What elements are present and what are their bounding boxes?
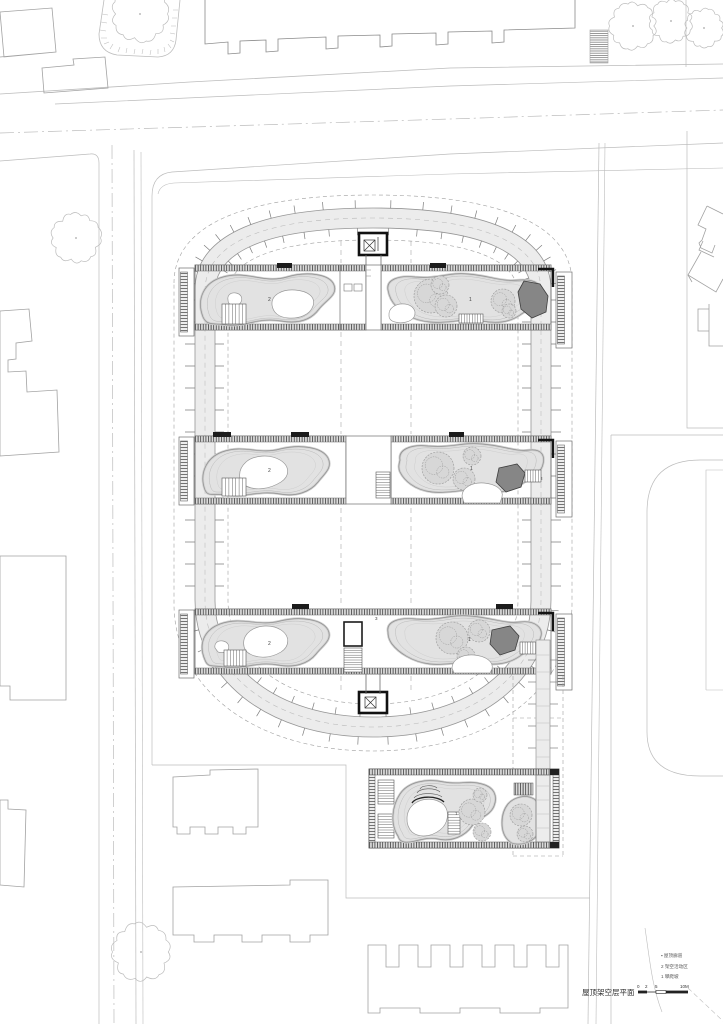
svg-text:2: 2 xyxy=(268,297,271,303)
svg-text:10M: 10M xyxy=(680,984,689,989)
svg-text:1: 1 xyxy=(470,466,473,472)
svg-text:1: 1 xyxy=(469,297,472,303)
svg-text:2: 2 xyxy=(268,468,271,474)
svg-text:屋顶架空层平面: 屋顶架空层平面 xyxy=(582,987,635,997)
svg-text:2 架空活动区: 2 架空活动区 xyxy=(661,963,688,970)
svg-text:2: 2 xyxy=(268,641,271,647)
svg-text:▪ 屋顶廊道: ▪ 屋顶廊道 xyxy=(661,952,683,959)
svg-text:1 攀爬坡: 1 攀爬坡 xyxy=(661,973,679,980)
svg-text:1: 1 xyxy=(468,637,471,643)
